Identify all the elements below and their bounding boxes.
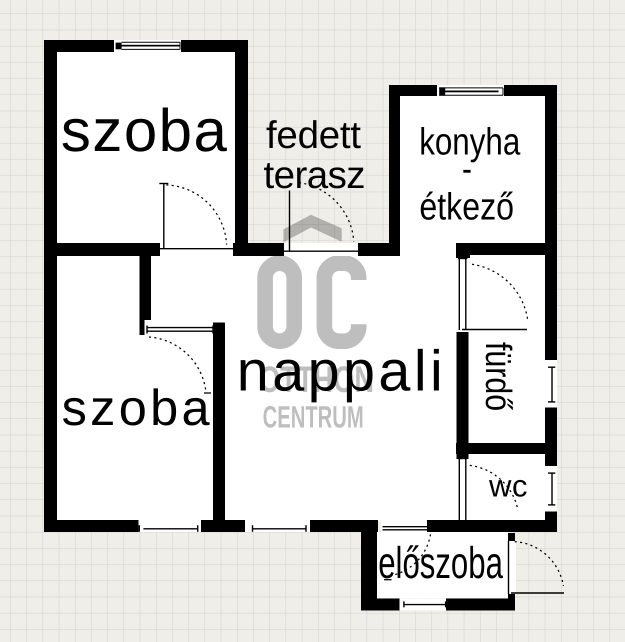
svg-text:-: -	[462, 148, 472, 189]
svg-text:fedett: fedett	[266, 114, 361, 157]
svg-text:étkező: étkező	[419, 187, 514, 229]
svg-text:szoba: szoba	[62, 379, 211, 436]
svg-text:szoba: szoba	[61, 97, 228, 164]
svg-text:wc: wc	[488, 468, 528, 503]
svg-text:előszoba: előszoba	[378, 539, 503, 588]
svg-text:terasz: terasz	[264, 154, 366, 197]
svg-text:fürdő: fürdő	[478, 342, 519, 411]
svg-text:CENTRUM: CENTRUM	[263, 400, 364, 435]
